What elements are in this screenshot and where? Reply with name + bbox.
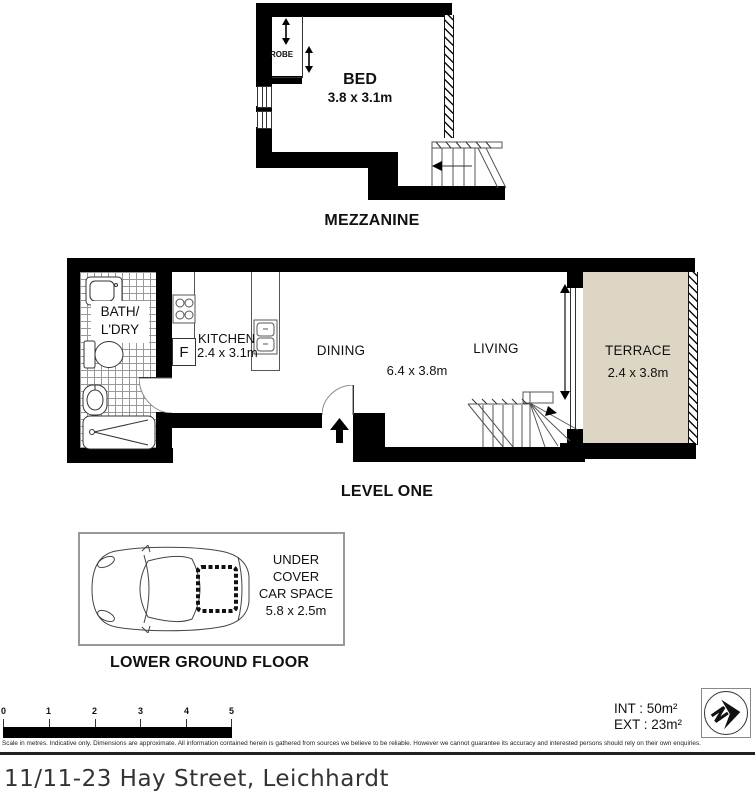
- door-swing: [139, 377, 172, 413]
- sliding-door-track: [575, 288, 576, 429]
- sliding-door-arrow-icon: [281, 18, 291, 45]
- scale-tick-label: 3: [138, 706, 143, 716]
- room-label-bath-box: BATH/ L'DRY: [91, 301, 149, 343]
- floorplan-level-one: BATH/ L'DRY: [0, 250, 755, 510]
- disclaimer-text: Scale in metres. Indicative only. Dimens…: [2, 740, 754, 747]
- car-space-line1: UNDER: [250, 551, 342, 568]
- car-space-dims: 5.8 x 2.5m: [250, 602, 342, 619]
- divider-line: [0, 752, 755, 755]
- footer: 0 1 2 3 4 5 INT : 50m² EXT : 23m²: [0, 690, 755, 800]
- wall-segment: [67, 258, 80, 463]
- floor-title-mezzanine: MEZZANINE: [292, 212, 452, 230]
- wall-segment: [256, 3, 272, 87]
- scale-tick-mark: [186, 719, 187, 727]
- bathtub: [82, 415, 156, 450]
- hand-basin: [82, 381, 109, 417]
- scale-tick-label: 0: [1, 706, 6, 716]
- floorplan-lower-ground: UNDER COVER CAR SPACE 5.8 x 2.5m LOWER G…: [0, 520, 755, 690]
- floorplan-mezzanine: ROBE BED 3.8 x 3: [0, 0, 755, 240]
- wall-segment: [67, 448, 173, 463]
- sliding-door-arrow-icon: [559, 284, 571, 400]
- wall-segment: [156, 272, 172, 378]
- toilet: [83, 339, 125, 370]
- void-edge-hatch: [444, 15, 454, 138]
- wall-segment: [353, 413, 385, 448]
- floor-title-lower-ground: LOWER GROUND FLOOR: [110, 654, 305, 672]
- room-label-terrace: TERRACE: [595, 343, 681, 358]
- door-swing: [322, 385, 354, 416]
- scale-tick-mark: [49, 719, 50, 727]
- room-label-bath-line1: BATH/: [91, 304, 149, 319]
- scale-tick-mark: [3, 719, 4, 727]
- area-external: EXT : 23m²: [614, 717, 682, 732]
- stairs: [428, 136, 508, 192]
- fridge-label: F: [173, 344, 195, 361]
- room-dims-bed: 3.8 x 3.1m: [310, 90, 410, 105]
- window: [257, 86, 272, 108]
- scale-bar: 0 1 2 3 4 5: [0, 690, 240, 740]
- scale-tick-mark: [140, 719, 141, 727]
- wall-segment: [353, 447, 585, 462]
- wall-segment: [67, 258, 695, 272]
- room-dims-terrace: 2.4 x 3.8m: [595, 365, 681, 380]
- wall-segment: [256, 152, 384, 168]
- scale-tick-mark: [231, 719, 232, 727]
- north-arrow-icon: [701, 688, 751, 738]
- car-top-view: [88, 545, 256, 633]
- room-label-bed: BED: [310, 71, 410, 89]
- area-internal: INT : 50m²: [614, 701, 678, 716]
- room-label-kitchen: KITCHEN: [198, 331, 255, 346]
- scale-tick-label: 2: [92, 706, 97, 716]
- scale-bar-fill: [3, 727, 232, 738]
- entry-arrow-icon: [330, 418, 349, 443]
- floorplan-page: ROBE BED 3.8 x 3: [0, 0, 755, 800]
- window: [257, 111, 272, 129]
- floor-title-level-one: LEVEL ONE: [317, 483, 457, 501]
- room-dims-dining: 6.4 x 3.8m: [375, 363, 459, 378]
- car-space-line2: COVER: [250, 568, 342, 585]
- room-dims-kitchen: 2.4 x 3.1m: [197, 345, 258, 360]
- wall-segment: [168, 413, 322, 428]
- terrace-railing-hatch: [688, 272, 698, 445]
- robe-label: ROBE: [270, 50, 293, 59]
- cooktop: [172, 294, 196, 324]
- scale-tick-label: 5: [229, 706, 234, 716]
- wall-segment: [256, 3, 452, 17]
- room-label-living: LIVING: [454, 341, 538, 356]
- fridge-box: F: [172, 338, 196, 366]
- property-address: 11/11-23 Hay Street, Leichhardt: [4, 766, 389, 792]
- room-label-bath-line2: L'DRY: [91, 322, 149, 337]
- room-label-dining: DINING: [299, 343, 383, 358]
- car-space-text: UNDER COVER CAR SPACE 5.8 x 2.5m: [250, 551, 342, 619]
- scale-tick-label: 4: [184, 706, 189, 716]
- sliding-door-arrow-icon: [304, 46, 314, 73]
- scale-tick-mark: [95, 719, 96, 727]
- scale-tick-label: 1: [46, 706, 51, 716]
- car-space-line3: CAR SPACE: [250, 585, 342, 602]
